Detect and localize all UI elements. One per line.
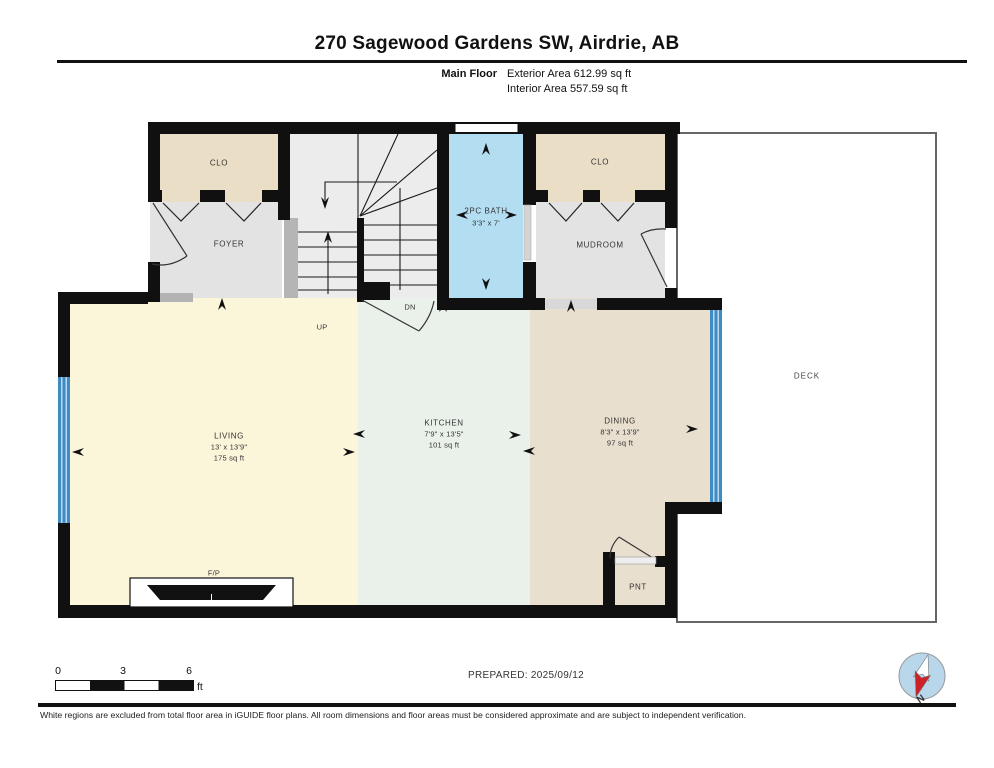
room-label-deck: DECK xyxy=(794,372,820,381)
dining-window xyxy=(710,310,722,502)
room-label-pantry: PNT xyxy=(629,583,647,592)
room-area-dining: 97 sq ft xyxy=(607,439,633,448)
scale-unit: ft xyxy=(197,681,203,693)
floor-plan-page: 270 Sagewood Gardens SW, Airdrie, AB Mai… xyxy=(0,0,994,768)
stairs-up-label: UP xyxy=(317,323,328,332)
floor-plan-drawing xyxy=(0,0,994,768)
room-label-closet-left: CLO xyxy=(210,159,228,168)
room-label-foyer: FOYER xyxy=(214,240,245,249)
foyer-floor xyxy=(150,202,282,298)
mudroom-floor xyxy=(536,202,665,298)
room-label-kitchen: KITCHEN xyxy=(424,419,463,428)
pantry-threshold xyxy=(615,557,656,564)
scale-tick-3: 3 xyxy=(116,665,130,677)
bath-window xyxy=(455,124,518,133)
room-dims-kitchen: 7'9" x 13'5" xyxy=(424,430,463,439)
fireplace xyxy=(130,578,293,607)
living-window xyxy=(58,377,70,523)
room-dims-dining: 8'3" x 13'9" xyxy=(600,428,639,437)
room-area-kitchen: 101 sq ft xyxy=(429,441,460,450)
stairs-stringer xyxy=(284,218,298,298)
scale-bar xyxy=(55,680,194,691)
living-floor xyxy=(70,298,358,605)
foyer-mat xyxy=(160,293,193,302)
room-label-bath: 2PC BATH xyxy=(464,207,507,216)
room-label-closet-right: CLO xyxy=(591,158,609,167)
room-label-mudroom: MUDROOM xyxy=(576,241,623,250)
scale-tick-6: 6 xyxy=(182,665,196,677)
prepared-date: PREPARED: 2025/09/12 xyxy=(426,670,626,681)
bath-door-leaf xyxy=(524,205,531,260)
scale-tick-0: 0 xyxy=(51,665,65,677)
kitchen-floor xyxy=(358,298,530,605)
stairs-down-label: DN xyxy=(404,303,415,312)
fireplace-label: F/P xyxy=(208,569,220,578)
room-label-dining: DINING xyxy=(604,417,636,426)
room-area-living: 175 sq ft xyxy=(214,454,245,463)
footer-divider xyxy=(38,703,956,707)
room-dims-living: 13' x 13'9" xyxy=(211,443,248,452)
disclaimer-text: White regions are excluded from total fl… xyxy=(40,710,746,720)
room-label-living: LIVING xyxy=(214,432,244,441)
room-dims-bath: 3'3" x 7' xyxy=(472,219,500,228)
